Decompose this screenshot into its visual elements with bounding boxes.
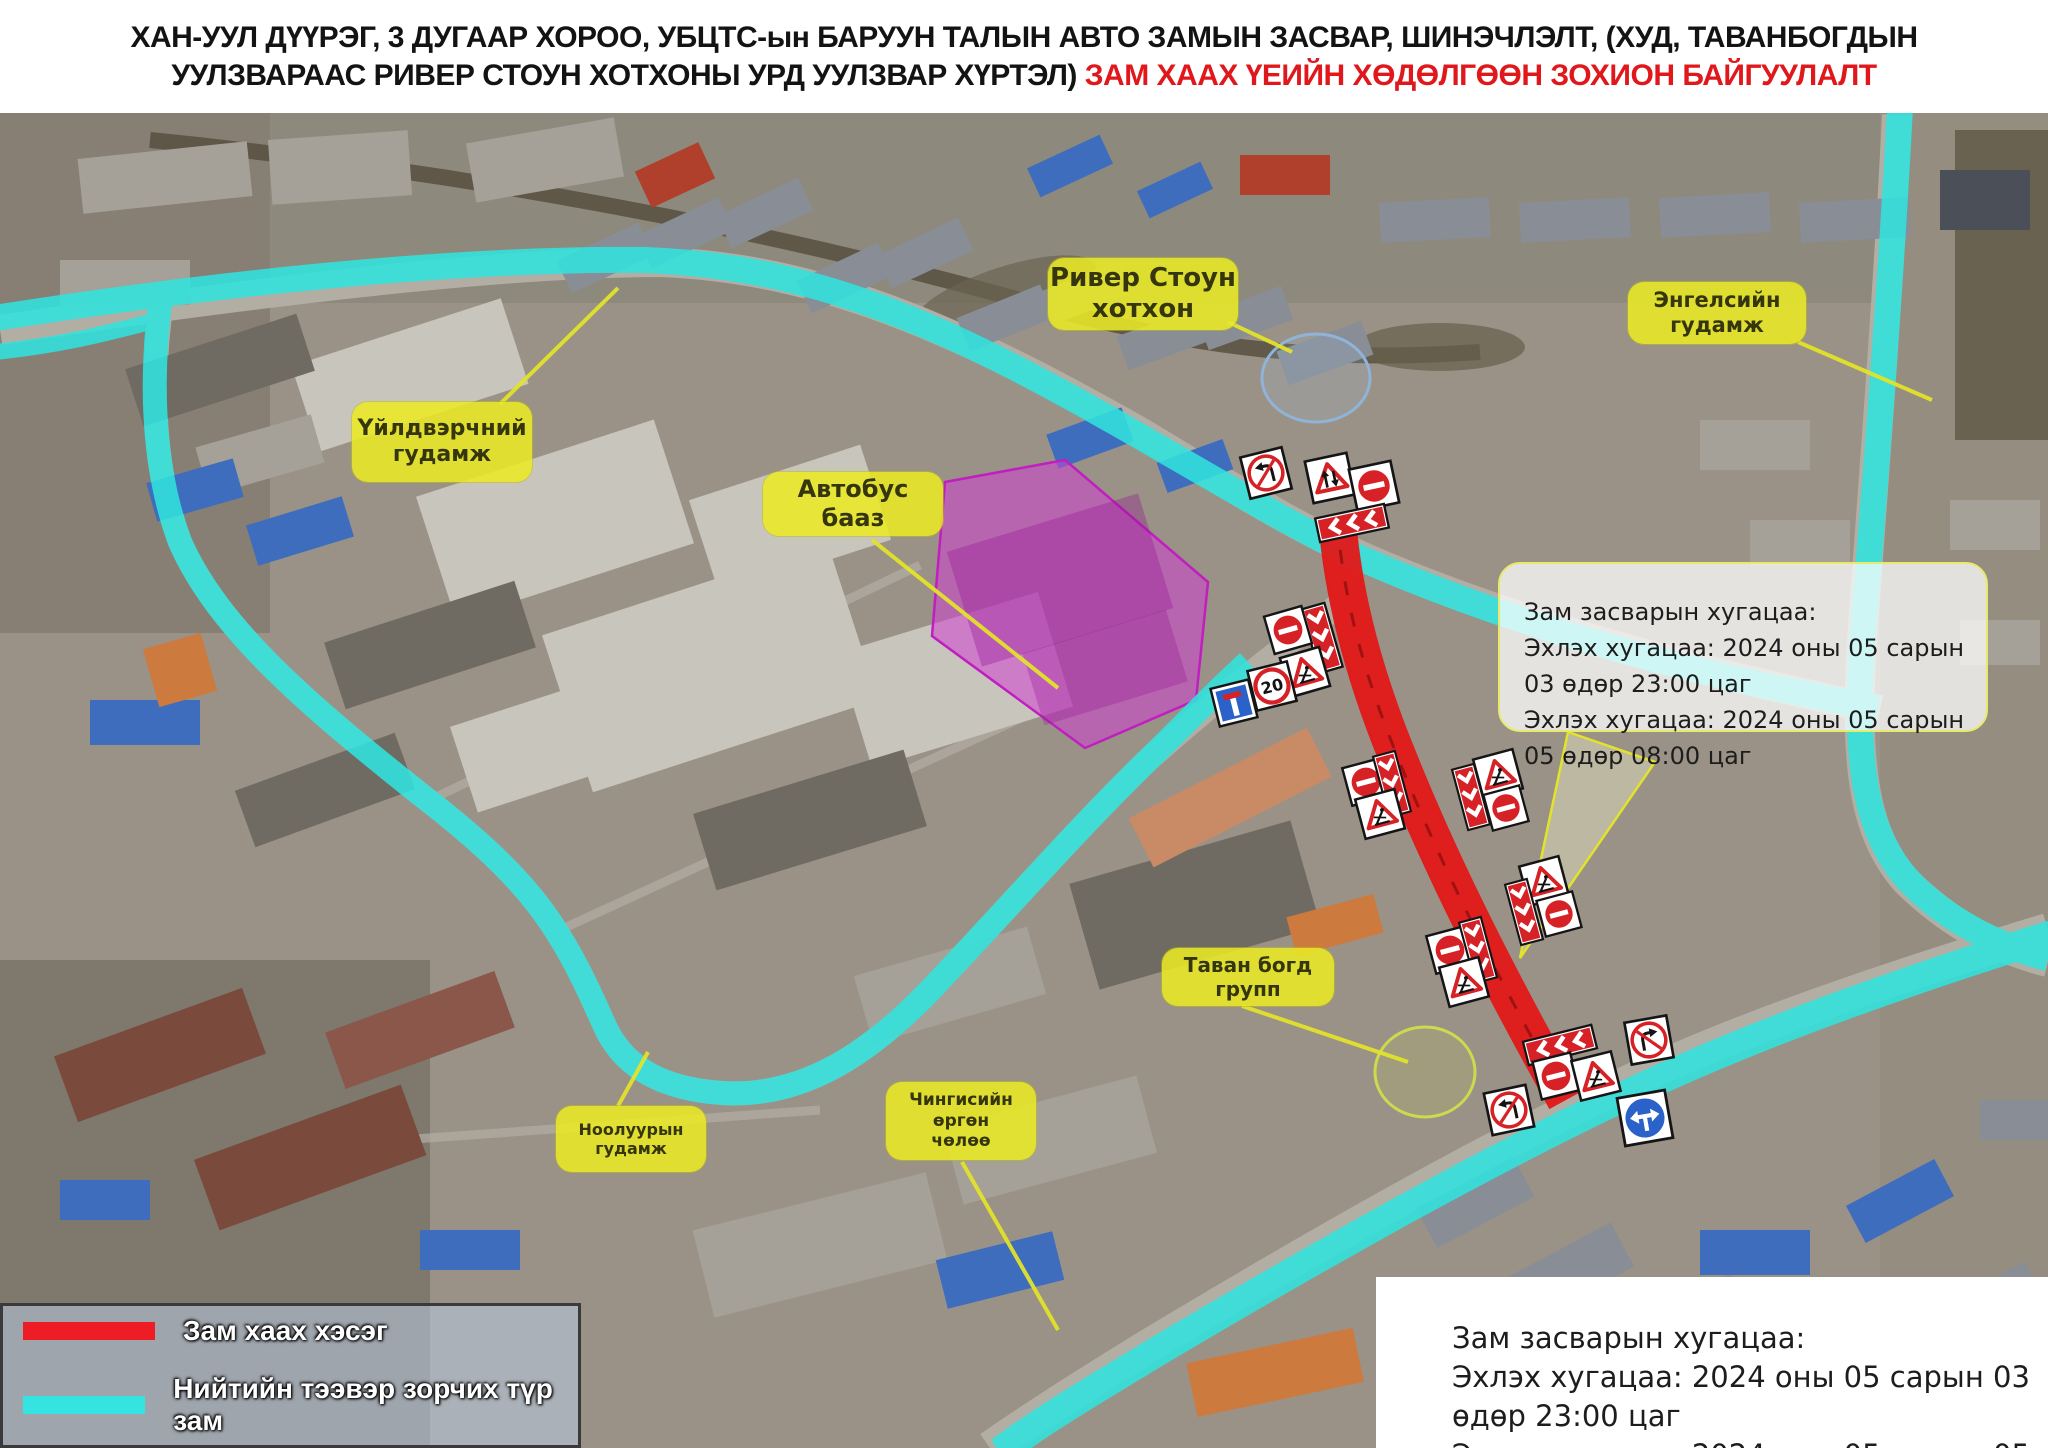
- label-chinggis-avenue: Чингисийн өргөн чөлөө: [886, 1082, 1036, 1160]
- label-river-stone: Ривер Стоун хотхон: [1048, 258, 1238, 330]
- no-right-turn-sign: [1624, 1015, 1673, 1064]
- label-tavan-bogd: Таван богд групп: [1162, 948, 1334, 1006]
- label-uildverchnii-line1: Үйлдвэрчний: [357, 416, 526, 442]
- title-line-2: УУЛЗВАРААС РИВЕР СТОУН ХОТХОНЫ УРД УУЛЗВ…: [171, 59, 1876, 93]
- repair-schedule-box: Зам засварын хугацаа: Эхлэх хугацаа: 202…: [1376, 1277, 2048, 1448]
- label-chinggis-line1: Чингисийн өргөн: [886, 1090, 1036, 1131]
- no-entry-sign: [1536, 891, 1581, 936]
- page-title: ХАН-УУЛ ДҮҮРЭГ, 3 ДУГААР ХОРОО, УБЦТС-ын…: [0, 0, 2048, 113]
- no-entry-sign: [1533, 1053, 1580, 1100]
- callout-heading: Зам засварын хугацаа:: [1524, 594, 1986, 630]
- label-chinggis-line2: чөлөө: [931, 1131, 990, 1151]
- no-entry-sign: [1349, 461, 1399, 511]
- label-river-stone-line1: Ривер Стоун: [1050, 263, 1236, 294]
- title-line-1: ХАН-УУЛ ДҮҮРЭГ, 3 ДУГААР ХОРОО, УБЦТС-ын…: [130, 21, 1917, 55]
- mandatory-left-right-sign: [1617, 1090, 1673, 1146]
- label-nooluuryn-street: Ноолуурын гудамж: [556, 1106, 706, 1172]
- title-line-2-red: ЗАМ ХААХ ҮЕИЙН ХӨДӨЛГӨӨН ЗОХИОН БАЙГУУЛА…: [1085, 59, 1877, 92]
- label-river-stone-line2: хотхон: [1092, 294, 1194, 325]
- title-line-2-black: УУЛЗВАРААС РИВЕР СТОУН ХОТХОНЫ УРД УУЛЗВ…: [171, 59, 1084, 92]
- repair-schedule-callout: Зам засварын хугацаа: Эхлэх хугацаа: 202…: [1498, 562, 1988, 732]
- road-narrows-sign: [1305, 453, 1355, 503]
- transit-route-swatch: [23, 1396, 145, 1414]
- closed-road-swatch: [23, 1322, 155, 1340]
- legend-row-closed: Зам хаах хэсэг: [23, 1315, 578, 1347]
- roadworks-sign: [1439, 957, 1489, 1007]
- legend-transit-label: Нийтийн тээвэр зорчих түр зам: [173, 1373, 578, 1437]
- dead-end-sign: [1211, 680, 1258, 727]
- label-uildverchnii-street: Үйлдвэрчний гудамж: [352, 402, 532, 482]
- traffic-plan-page: ХАН-УУЛ ДҮҮРЭГ, 3 ДУГААР ХОРОО, УБЦТС-ын…: [0, 0, 2048, 1448]
- callout-line1: Эхлэх хугацаа: 2024 оны 05 сарын 03 өдөр…: [1524, 630, 1986, 702]
- roadworks-sign: [1355, 789, 1405, 839]
- callout-line2: Эхлэх хугацаа: 2024 оны 05 сарын 05 өдөр…: [1524, 702, 1986, 774]
- label-tavan-bogd-text: Таван богд групп: [1162, 953, 1334, 1001]
- label-engels-text: Энгелсийн гудамж: [1628, 288, 1806, 338]
- no-left-turn-sign: [1484, 1085, 1534, 1135]
- roadworks-sign: [1571, 1051, 1620, 1100]
- label-nooluuryn-text: Ноолуурын гудамж: [556, 1120, 706, 1158]
- map-legend: Зам хаах хэсэг Нийтийн тээвэр зорчих түр…: [0, 1303, 581, 1448]
- label-bus-depot-text: Автобус бааз: [763, 475, 943, 533]
- schedule-line2: Эхлэх хугацаа: 2024 оны 05 сарын 05 өдөр…: [1452, 1436, 2048, 1448]
- tavan-bogd-circle: [1375, 1027, 1475, 1117]
- label-bus-depot: Автобус бааз: [763, 472, 943, 536]
- legend-row-transit: Нийтийн тээвэр зорчих түр зам: [23, 1373, 578, 1437]
- legend-closed-label: Зам хаах хэсэг: [183, 1315, 388, 1347]
- no-entry-sign: [1483, 785, 1528, 830]
- label-engels-street: Энгелсийн гудамж: [1628, 282, 1806, 344]
- label-uildverchnii-line2: гудамж: [393, 442, 491, 468]
- schedule-line1: Эхлэх хугацаа: 2024 оны 05 сарын 03 өдөр…: [1452, 1358, 2048, 1436]
- no-left-turn-sign: [1240, 447, 1291, 498]
- schedule-heading: Зам засварын хугацаа:: [1452, 1319, 2048, 1358]
